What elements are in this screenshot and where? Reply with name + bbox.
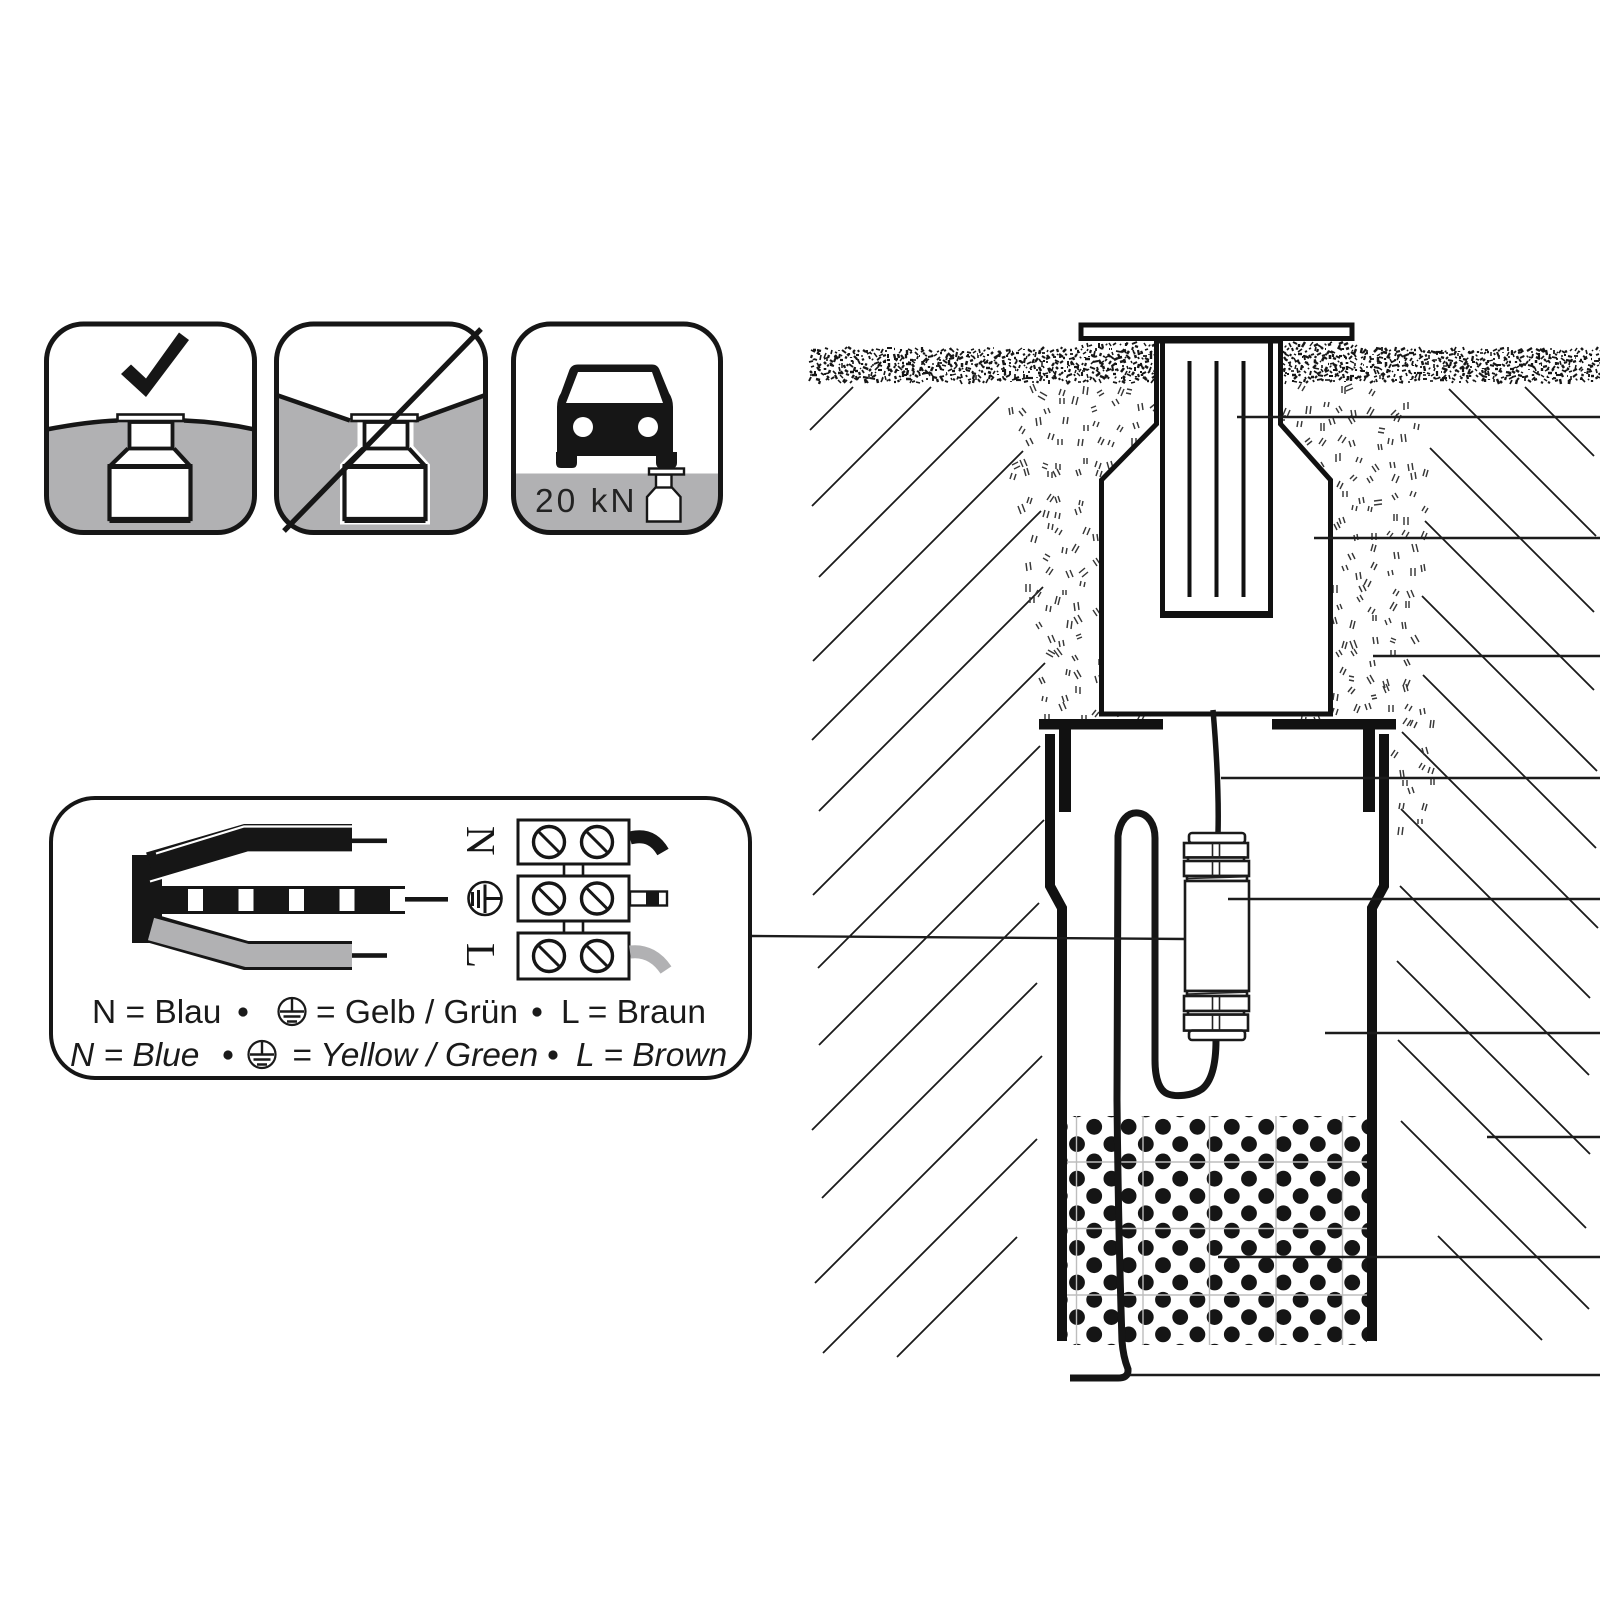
svg-text:N = Blue: N = Blue — [70, 1037, 199, 1074]
svg-text:L = Brown: L = Brown — [576, 1037, 727, 1074]
svg-text:= Yellow / Green: = Yellow / Green — [292, 1037, 538, 1074]
svg-text:L: L — [458, 943, 504, 968]
svg-text:L = Braun: L = Braun — [561, 994, 706, 1031]
svg-text:N: N — [458, 826, 504, 856]
svg-text:20 kN: 20 kN — [535, 483, 638, 520]
svg-text:N = Blau: N = Blau — [92, 994, 221, 1031]
svg-text:= Gelb / Grün: = Gelb / Grün — [316, 994, 518, 1031]
